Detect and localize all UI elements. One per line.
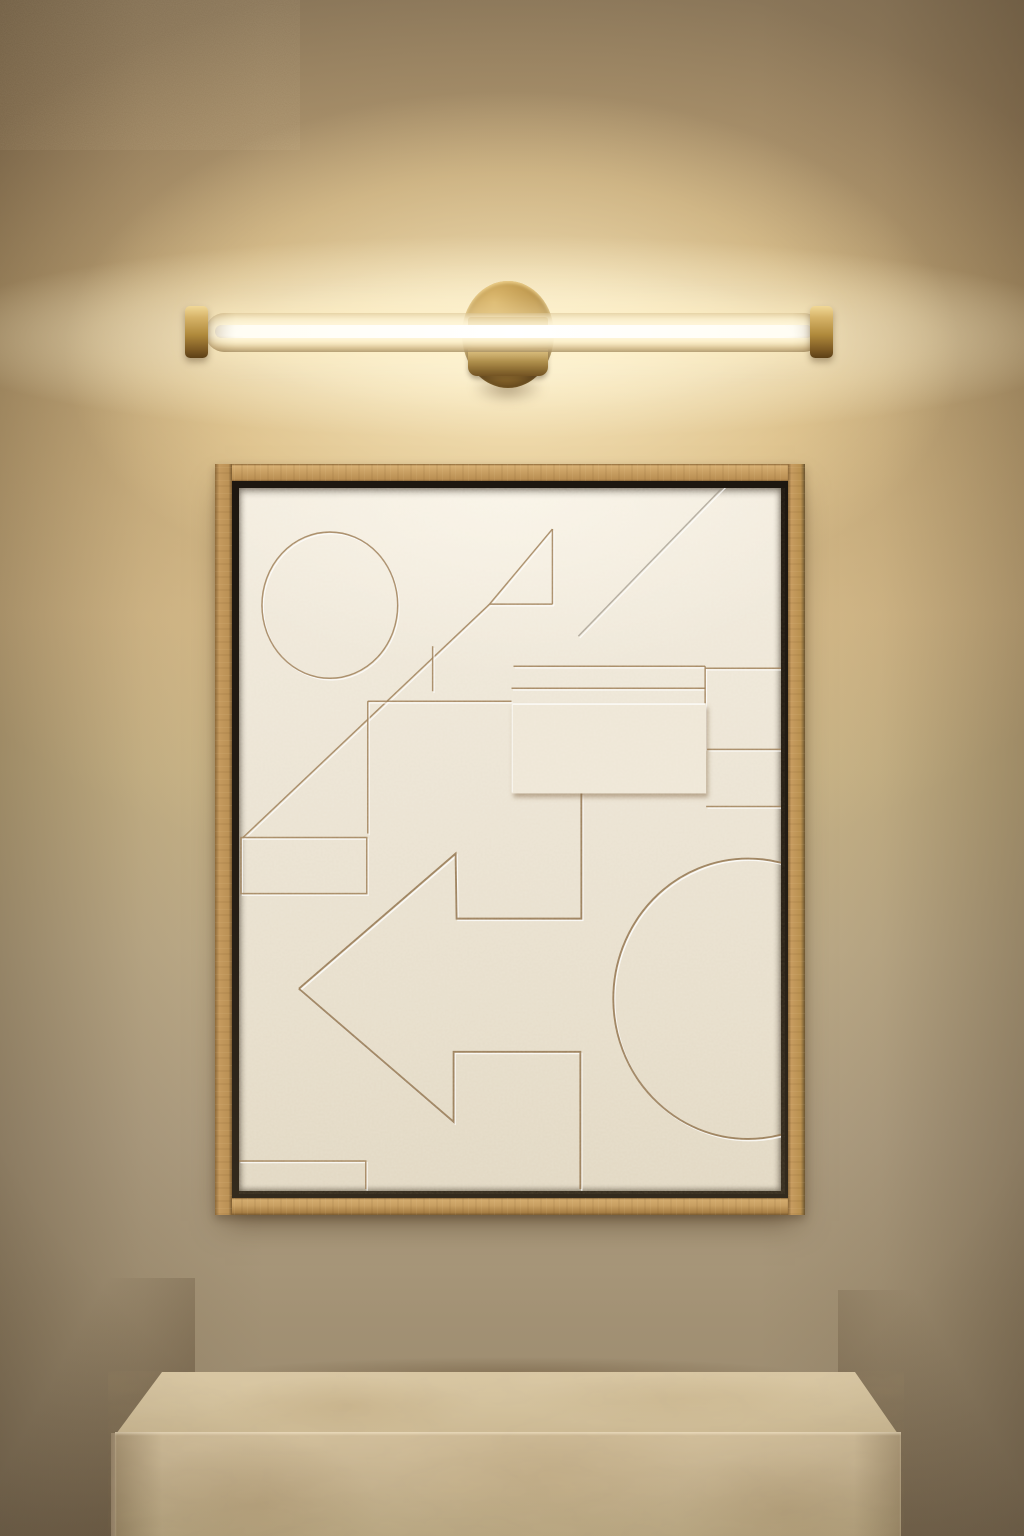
frame-rail-right [788,464,805,1215]
sconce-end-cap-right [810,306,833,358]
frame-rail-left [215,464,232,1215]
short-vertical-line [433,646,434,693]
plinth-back-shadow [140,1352,884,1374]
plaster-relief-canvas [239,488,781,1191]
frame-rail-bottom [215,1198,805,1215]
square-panel-left-edge [368,701,369,835]
framed-relief-artwork [215,464,805,1215]
bottom-left-step [239,1161,367,1191]
large-arc-circle [613,859,781,1141]
right-ledge-mid [707,749,781,751]
frame-inner-black-lip [232,481,788,1198]
ledge-line-upper [513,666,706,668]
right-ledge-low [706,806,781,808]
upper-right-diagonal [578,488,725,638]
ledge-line-lower [511,688,706,690]
sconce-end-cap-left [185,306,208,358]
plinth-top-face [108,1371,904,1434]
triangle-hypotenuse [490,529,554,606]
raised-rectangle-panel [511,703,708,797]
plinth-front-face [115,1432,901,1536]
triangle-base [490,604,554,606]
led-glow-core [215,325,813,338]
sconce-glass-tube [205,313,823,352]
frame-rail-top [215,464,805,481]
interior-scene [0,0,1024,1536]
relief-shapes-layer [239,488,781,1191]
long-diagonal-line [243,604,491,839]
sconce-center-clamp [468,349,548,376]
right-ledge-top [705,668,781,670]
left-rectangle-outline [241,837,368,895]
triangle-right-edge [552,529,553,606]
arrow-upper-outline [299,793,583,990]
incised-circle [262,532,399,680]
